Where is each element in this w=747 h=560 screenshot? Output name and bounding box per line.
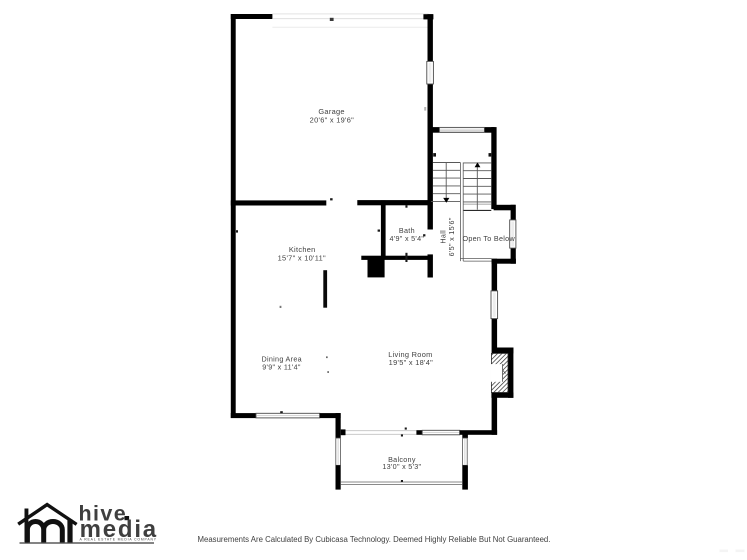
svg-text:13'0" x 5'3": 13'0" x 5'3" xyxy=(382,462,421,471)
svg-text:9'9" x 11'4": 9'9" x 11'4" xyxy=(262,362,301,371)
svg-text:Measurements Are Calculated By: Measurements Are Calculated By Cubicasa … xyxy=(198,535,551,544)
svg-text:19'5" x 18'4": 19'5" x 18'4" xyxy=(389,358,434,367)
svg-text:4'9" x 5'4": 4'9" x 5'4" xyxy=(390,234,425,243)
svg-text:15'7" x 10'11": 15'7" x 10'11" xyxy=(278,253,326,262)
svg-text:20'6" x 19'6": 20'6" x 19'6" xyxy=(310,115,355,124)
svg-text:Open To Below: Open To Below xyxy=(462,234,515,243)
svg-text:A REAL ESTATE MEDIA COMPANY: A REAL ESTATE MEDIA COMPANY xyxy=(80,537,157,541)
